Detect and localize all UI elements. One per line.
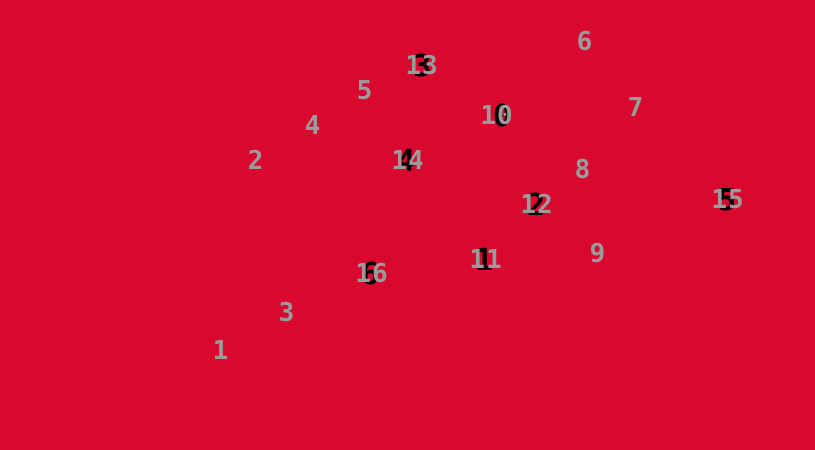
number-label: 9 [590,239,607,269]
number-target-15[interactable]: 515 [711,187,744,213]
number-target-2[interactable]: 2 [248,148,265,174]
number-label: 10 [480,101,513,131]
number-label: 5 [357,76,374,106]
number-target-16[interactable]: 616 [355,261,388,287]
number-label: 1 [213,336,230,366]
number-label: 14 [391,146,424,176]
number-target-12[interactable]: 212 [520,192,553,218]
number-label: 11 [469,245,502,275]
number-label: 12 [520,190,553,220]
number-label: 3 [279,298,296,328]
number-label: 2 [248,146,265,176]
number-target-3[interactable]: 3 [279,300,296,326]
number-target-11[interactable]: 111 [469,247,502,273]
number-label: 15 [711,185,744,215]
number-label: 6 [577,27,594,57]
number-target-13[interactable]: 313 [405,53,438,79]
number-label: 7 [628,93,645,123]
number-label: 8 [575,155,592,185]
number-target-4[interactable]: 4 [305,113,322,139]
number-label: 13 [405,51,438,81]
number-label: 4 [305,111,322,141]
number-target-9[interactable]: 9 [590,241,607,267]
number-target-6[interactable]: 6 [577,29,594,55]
number-target-10[interactable]: 010 [480,103,513,129]
number-target-1[interactable]: 1 [213,338,230,364]
click-target-canvas: 123456789010111212313414515616 [0,0,815,450]
number-target-5[interactable]: 5 [357,78,374,104]
number-target-14[interactable]: 414 [391,148,424,174]
number-label: 16 [355,259,388,289]
number-target-8[interactable]: 8 [575,157,592,183]
number-target-7[interactable]: 7 [628,95,645,121]
